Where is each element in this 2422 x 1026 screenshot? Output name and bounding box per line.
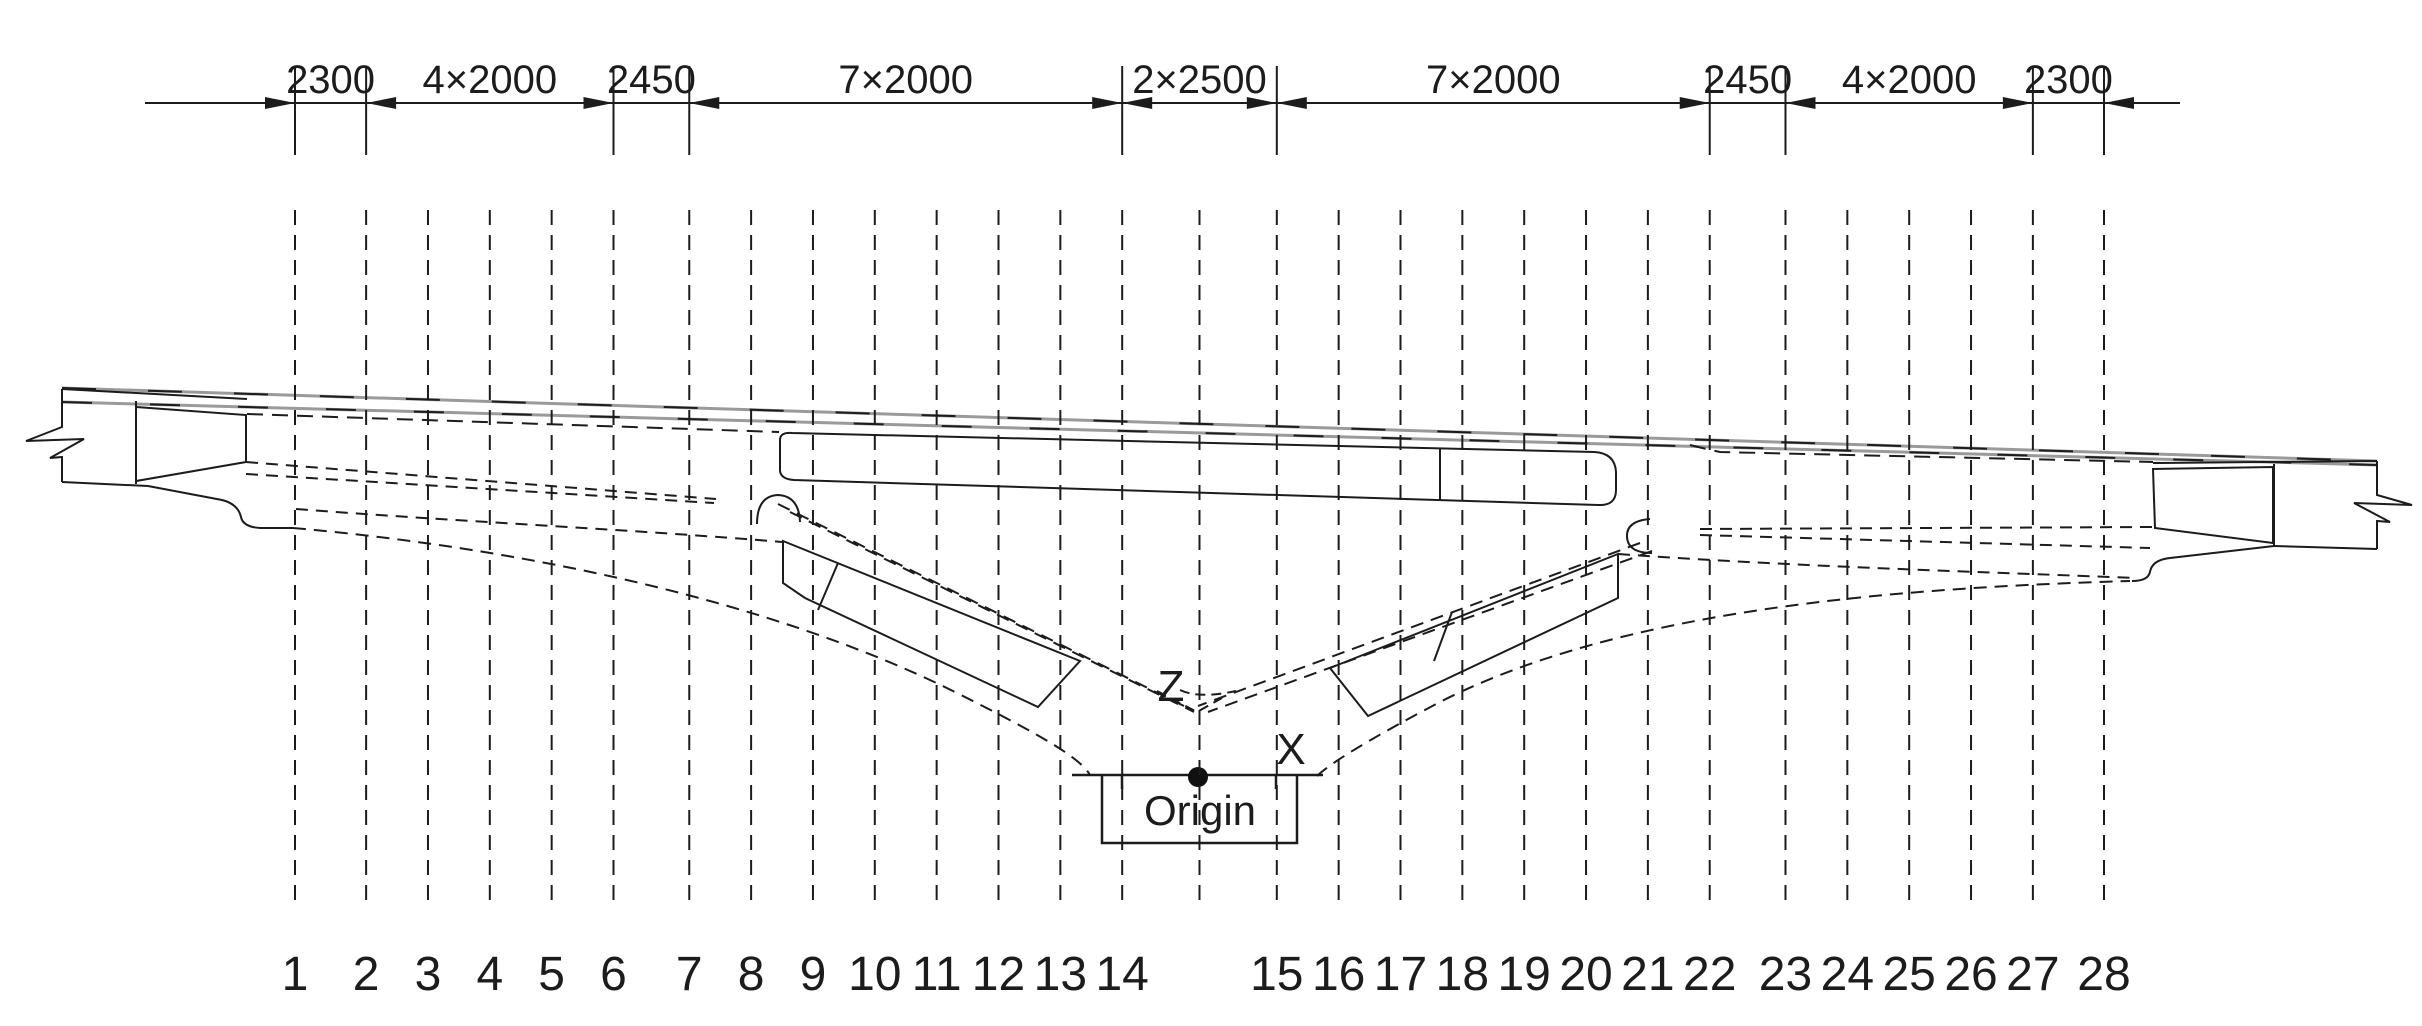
section-number-21: 21	[1621, 948, 1674, 1001]
left-leg-outer-edge	[293, 528, 1090, 775]
left-end-chamber	[136, 407, 246, 481]
section-number-23: 23	[1759, 948, 1812, 1001]
origin-label: Origin	[1144, 787, 1256, 834]
section-number-19: 19	[1497, 948, 1550, 1001]
section-number-27: 27	[2006, 948, 2059, 1001]
section-number-14: 14	[1095, 948, 1148, 1001]
left-leg-void-divider	[818, 563, 838, 610]
right-leg-inner-edge-b	[1198, 543, 1640, 706]
section-number-18: 18	[1436, 948, 1489, 1001]
bridge-structure	[26, 388, 2412, 843]
origin-point-marker	[1188, 767, 1208, 787]
section-number-1: 1	[282, 948, 309, 1001]
z-axis-label: Z	[1158, 662, 1185, 711]
section-number-4: 4	[476, 948, 503, 1001]
section-number-13: 13	[1034, 948, 1087, 1001]
dimension-label: 7×2000	[1426, 58, 1561, 102]
v-apex-arc	[1180, 690, 1236, 695]
drawing-canvas: 23004×200024507×20002×25007×200024504×20…	[0, 0, 2422, 1026]
left-leg-root-arch	[757, 495, 800, 524]
section-number-28: 28	[2077, 948, 2130, 1001]
left-lower-chord	[296, 509, 782, 542]
section-number-8: 8	[738, 948, 765, 1001]
section-number-24: 24	[1821, 948, 1874, 1001]
section-number-9: 9	[800, 948, 827, 1001]
right-lower-chord	[1618, 554, 2135, 578]
section-number-7: 7	[676, 948, 703, 1001]
bridge-elevation-svg: 23004×200024507×20002×25007×200024504×20…	[0, 0, 2422, 1026]
dimension-label: 2300	[286, 58, 375, 102]
dimension-arrow	[1277, 97, 1307, 109]
section-number-5: 5	[538, 948, 565, 1001]
left-upper-chord-a	[246, 462, 716, 499]
left-leg-inner-edge-a	[790, 512, 1194, 712]
section-number-16: 16	[1312, 948, 1365, 1001]
left-top-slab-soffit	[247, 414, 779, 432]
section-number-20: 20	[1559, 948, 1612, 1001]
section-number-22: 22	[1683, 948, 1736, 1001]
dimension-label: 2300	[2024, 58, 2113, 102]
dimension-label: 4×2000	[423, 58, 558, 102]
left-upper-chord-b	[246, 474, 714, 503]
section-number-12: 12	[972, 948, 1025, 1001]
right-break-symbol	[2354, 461, 2412, 549]
section-number-10: 10	[848, 948, 901, 1001]
right-end-block-bottom	[2274, 546, 2377, 549]
section-number-25: 25	[1882, 948, 1935, 1001]
left-haunch-knuckle	[148, 486, 293, 528]
dimension-chain: 23004×200024507×20002×25007×200024504×20…	[145, 58, 2180, 155]
dimension-label: 2×2500	[1132, 58, 1267, 102]
right-upper-chord-a	[1700, 527, 2153, 529]
left-leg-void	[783, 541, 1080, 707]
dimension-label: 7×2000	[838, 58, 973, 102]
section-numbers: 1234567891011121314151617181920212223242…	[282, 948, 2131, 1001]
section-number-15: 15	[1250, 948, 1303, 1001]
left-leg-inner-edge-b	[778, 504, 1184, 706]
right-leg-void-divider	[1434, 612, 1452, 661]
x-axis-label: X	[1276, 725, 1305, 774]
section-number-3: 3	[415, 948, 442, 1001]
right-upper-chord-b	[1700, 535, 2150, 548]
section-number-11: 11	[912, 948, 962, 1001]
section-number-6: 6	[600, 948, 627, 1001]
section-number-26: 26	[1944, 948, 1997, 1001]
right-end-chamber	[2153, 467, 2273, 543]
section-number-2: 2	[353, 948, 380, 1001]
dimension-label: 4×2000	[1842, 58, 1977, 102]
right-leg-outer-edge	[1317, 581, 2130, 776]
dimension-label: 2450	[607, 58, 696, 102]
section-number-17: 17	[1374, 948, 1427, 1001]
right-haunch-knuckle	[2132, 546, 2274, 581]
dimension-arrow	[1092, 97, 1122, 109]
dimension-label: 2450	[1703, 58, 1792, 102]
right-leg-void	[1330, 554, 1618, 716]
center-chamber	[780, 433, 1616, 505]
